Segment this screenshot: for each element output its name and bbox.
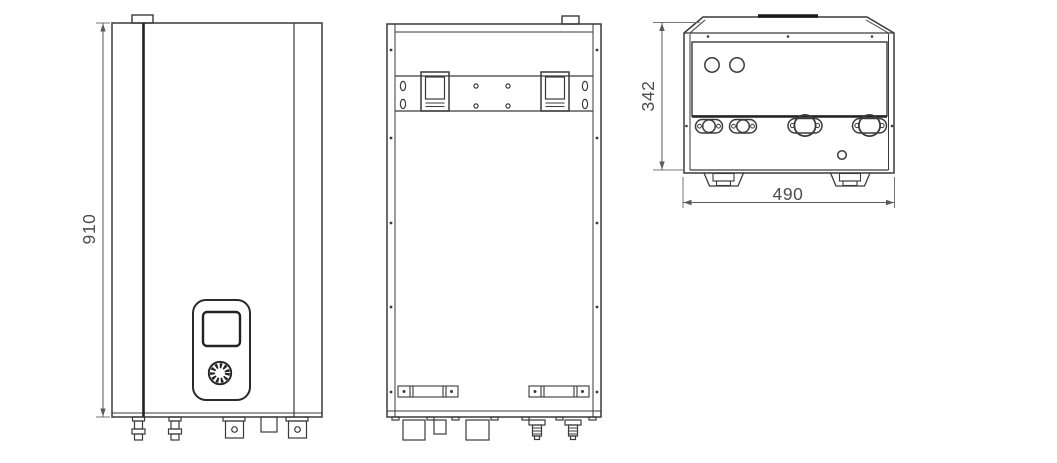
large-flange: [788, 115, 822, 136]
fixing-strip: [529, 386, 589, 397]
hanging-hook: [541, 72, 569, 111]
back-bottom-connections: [392, 417, 596, 440]
arrowhead-down-icon: [659, 162, 664, 170]
keyhole-slot: [582, 81, 587, 90]
arrowhead-up-icon: [100, 24, 105, 32]
threaded-fitting: [565, 420, 581, 440]
threaded-fitting: [529, 420, 545, 440]
bracket-with-hole: [223, 417, 245, 438]
knockout-hole: [705, 58, 719, 72]
technical-drawing-page: 910: [0, 0, 1057, 463]
back-view: [387, 16, 601, 440]
bracket-with-hole: [286, 417, 308, 438]
large-pipe: [466, 420, 489, 440]
dimension-width-label: 490: [773, 184, 804, 204]
three-view-drawing: 910: [0, 0, 1057, 463]
bottom-screw-dots: [685, 35, 893, 127]
foot: [831, 173, 871, 186]
large-pipe: [403, 420, 425, 440]
small-flange: [696, 120, 723, 134]
front-bottom-connections: [132, 417, 308, 440]
base-plate: [692, 42, 887, 116]
hanging-hook: [421, 72, 449, 111]
keyhole-slot: [400, 99, 405, 108]
dimension-height-label: 910: [79, 214, 99, 245]
control-panel: [193, 300, 250, 400]
pipe-flanges: [696, 115, 887, 136]
drain-hole: [838, 151, 847, 160]
rotary-dial-icon: [209, 362, 231, 384]
pipe-fitting: [169, 417, 182, 440]
front-view: [112, 15, 322, 440]
pipe-fitting: [132, 417, 145, 440]
mounting-bracket: [395, 72, 593, 111]
back-top-stub: [562, 16, 579, 24]
knockout-hole: [730, 58, 744, 72]
arrowhead-left-icon: [684, 200, 692, 205]
bracket-screw-holes: [474, 84, 510, 108]
small-pipe: [434, 420, 446, 434]
dimension-width: 490: [683, 177, 895, 208]
keyhole-slot: [400, 81, 405, 90]
front-top-stub: [132, 15, 153, 23]
dimension-depth: 342: [638, 23, 700, 171]
arrowhead-down-icon: [100, 409, 105, 417]
fixing-strip: [398, 386, 458, 397]
bottom-cabinet-outline: [684, 17, 894, 173]
large-flange: [853, 115, 887, 136]
foot: [704, 173, 744, 186]
arrowhead-up-icon: [659, 23, 664, 31]
arrowhead-right-icon: [886, 200, 894, 205]
lower-fixing-strips: [398, 386, 589, 397]
bottom-view: [684, 16, 894, 186]
small-flange: [730, 120, 757, 134]
dimension-height: 910: [79, 23, 110, 417]
bottom-stub: [261, 417, 277, 432]
keyhole-slot: [582, 99, 587, 108]
dimension-depth-label: 342: [638, 81, 658, 112]
display-screen: [203, 312, 240, 346]
